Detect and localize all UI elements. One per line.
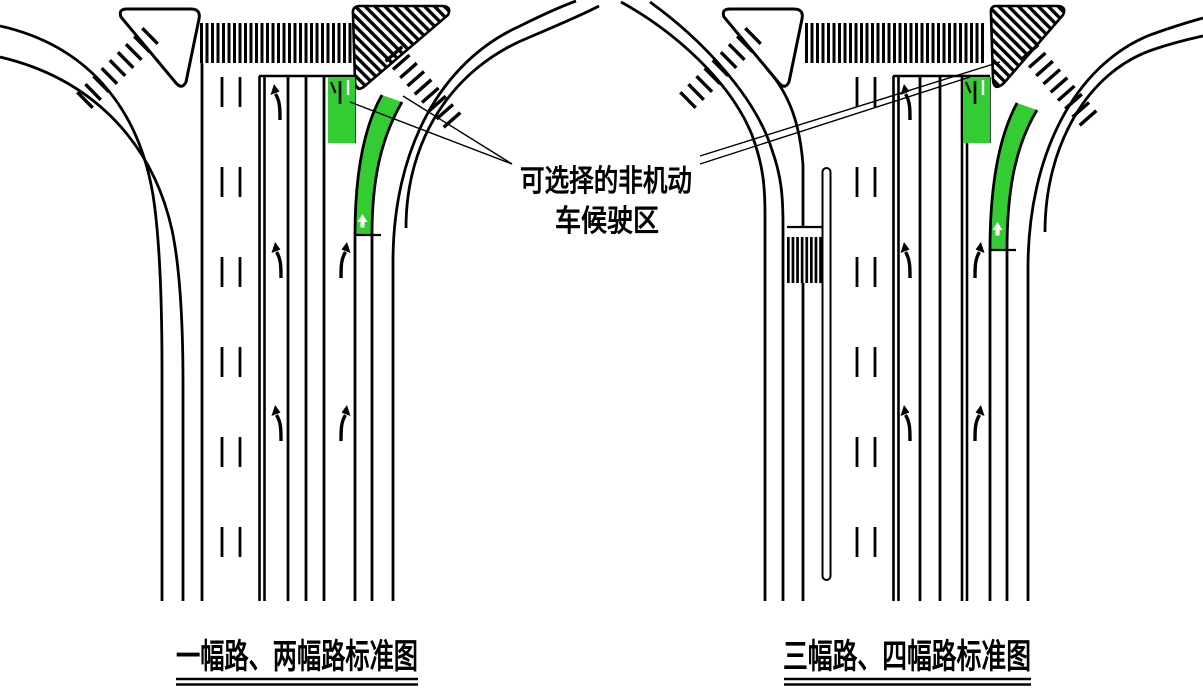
ladder-rung [688, 84, 703, 100]
caption-right: 三幅路、四幅路标准图 [783, 637, 1031, 685]
ladder-rung [680, 92, 695, 108]
ladder-rung [415, 80, 432, 95]
ladder-rung [697, 76, 713, 92]
channelization-island-white [723, 9, 802, 86]
leader-lines [350, 62, 1000, 164]
ladder-rung [94, 76, 110, 92]
crosswalk-zebra [200, 23, 352, 63]
ladder-rung [408, 72, 425, 87]
ladder-rung [118, 52, 133, 68]
annotation-line2: 车候驶区 [555, 204, 659, 239]
ladder-rung [721, 52, 736, 68]
ladder-rung [729, 44, 745, 60]
ladder-rung [102, 68, 117, 84]
ladder-rung [110, 60, 125, 76]
right-diagram [621, 2, 1203, 601]
ladder-rung [126, 44, 142, 60]
lane-lines [202, 63, 372, 601]
ladder-rung [1058, 86, 1075, 101]
ladder-rung [1051, 78, 1068, 93]
ladder-rung [705, 68, 720, 84]
ladder-rung [400, 63, 417, 78]
crosswalk-zebra [803, 23, 985, 63]
caption-right-text: 三幅路、四幅路标准图 [783, 637, 1031, 677]
median-separator-strip [823, 168, 831, 580]
channelization-island-white [120, 9, 199, 86]
right-corner-curves [1028, 18, 1203, 601]
ladder-rung [713, 60, 728, 76]
left-road-curb-curves [0, 26, 183, 601]
ladder-rung [1036, 61, 1053, 76]
caption-left: 一幅路、两幅路标准图 [176, 637, 418, 685]
left-road-curb-curves [621, 2, 803, 601]
ladder-rung [1080, 111, 1097, 126]
ladder-rung [1044, 70, 1061, 85]
caption-left-text: 一幅路、两幅路标准图 [176, 637, 418, 677]
annotation-line1: 可选择的非机动 [520, 164, 692, 199]
right-corner-curves [393, 1, 599, 601]
bike-lane-mini-zebra [787, 237, 822, 283]
lane-lines [857, 76, 1007, 601]
annotation: 可选择的非机动 车候驶区 [350, 62, 1000, 239]
ladder-rung [444, 113, 461, 128]
road-standard-diagram-canvas: 可选择的非机动 车候驶区 一幅路、两幅路标准图 三幅路、四幅路标准图 [0, 0, 1203, 694]
diagram-svg: 可选择的非机动 车候驶区 一幅路、两幅路标准图 三幅路、四幅路标准图 [0, 0, 1203, 694]
ladder-rung [1029, 53, 1046, 68]
